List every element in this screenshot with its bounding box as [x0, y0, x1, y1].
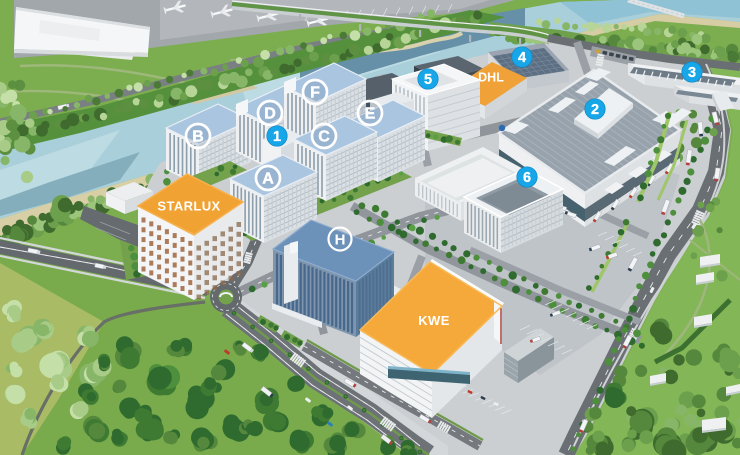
- svg-text:6: 6: [523, 170, 531, 186]
- svg-text:A: A: [262, 171, 274, 188]
- svg-text:3: 3: [688, 65, 696, 81]
- svg-text:STARLUX: STARLUX: [157, 199, 220, 214]
- svg-text:KWE: KWE: [418, 313, 450, 328]
- svg-text:D: D: [264, 106, 276, 123]
- svg-text:E: E: [365, 106, 376, 123]
- svg-text:DHL: DHL: [478, 71, 504, 85]
- svg-text:B: B: [192, 129, 204, 146]
- svg-text:1: 1: [273, 129, 281, 145]
- svg-text:H: H: [335, 232, 346, 249]
- svg-text:F: F: [310, 85, 320, 102]
- svg-text:C: C: [318, 129, 330, 146]
- svg-text:5: 5: [424, 72, 432, 88]
- svg-text:2: 2: [591, 102, 599, 118]
- svg-text:4: 4: [518, 50, 526, 66]
